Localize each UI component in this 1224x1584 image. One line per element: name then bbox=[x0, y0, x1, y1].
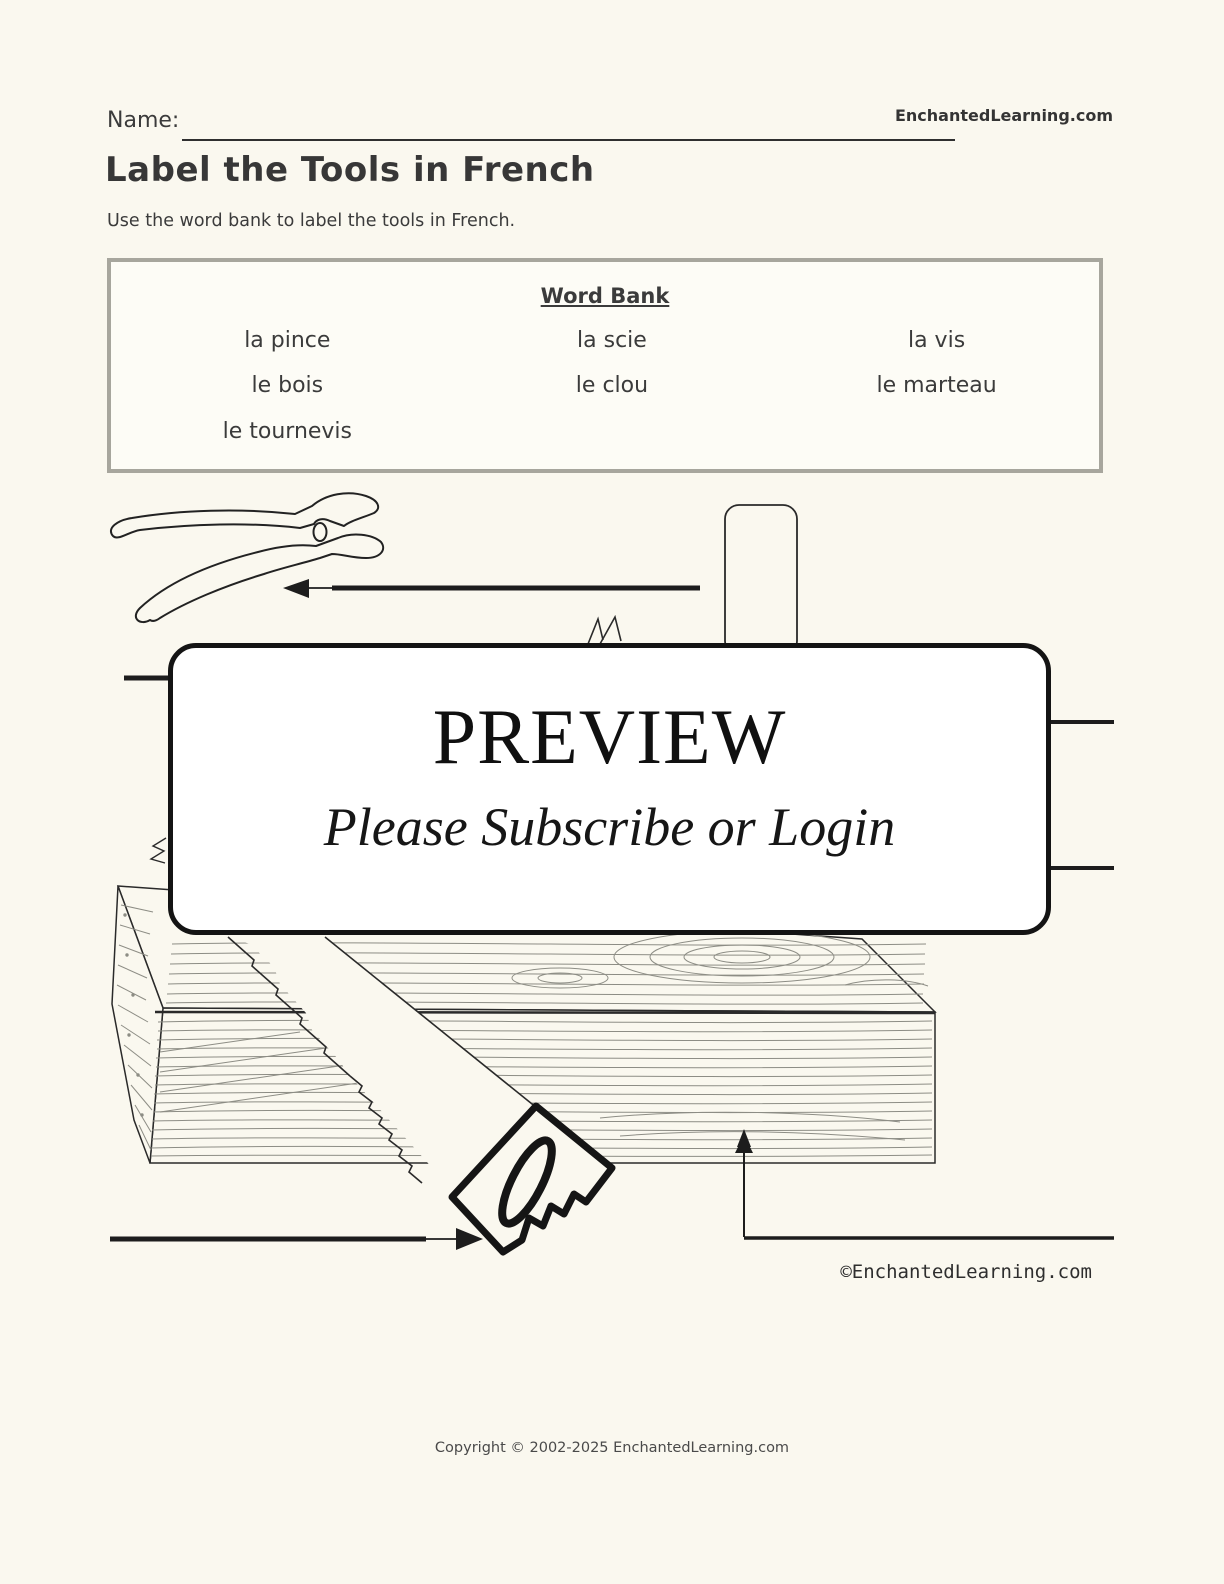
arrow-left-icon bbox=[283, 579, 309, 598]
hammer-icon bbox=[725, 505, 797, 655]
preview-title: PREVIEW bbox=[173, 698, 1046, 776]
answer-line-pliers bbox=[283, 579, 700, 598]
answer-line-saw bbox=[110, 1228, 483, 1250]
wood-front-edge bbox=[155, 1012, 935, 1013]
screw-tips-icon bbox=[588, 617, 621, 644]
pliers-icon bbox=[111, 493, 383, 622]
preview-overlay[interactable]: PREVIEW Please Subscribe or Login bbox=[168, 643, 1051, 935]
footer-copyright: Copyright © 2002-2025 EnchantedLearning.… bbox=[0, 1440, 1224, 1456]
drawing-credit: ©EnchantedLearning.com bbox=[840, 1261, 1092, 1283]
preview-subscribe-login[interactable]: Please Subscribe or Login bbox=[173, 800, 1046, 854]
screwdriver-tip-icon bbox=[151, 838, 166, 863]
answer-line-nail bbox=[744, 1153, 1114, 1238]
arrow-right-icon bbox=[456, 1228, 483, 1250]
worksheet-page: Name: EnchantedLearning.com Label the To… bbox=[0, 0, 1224, 1584]
